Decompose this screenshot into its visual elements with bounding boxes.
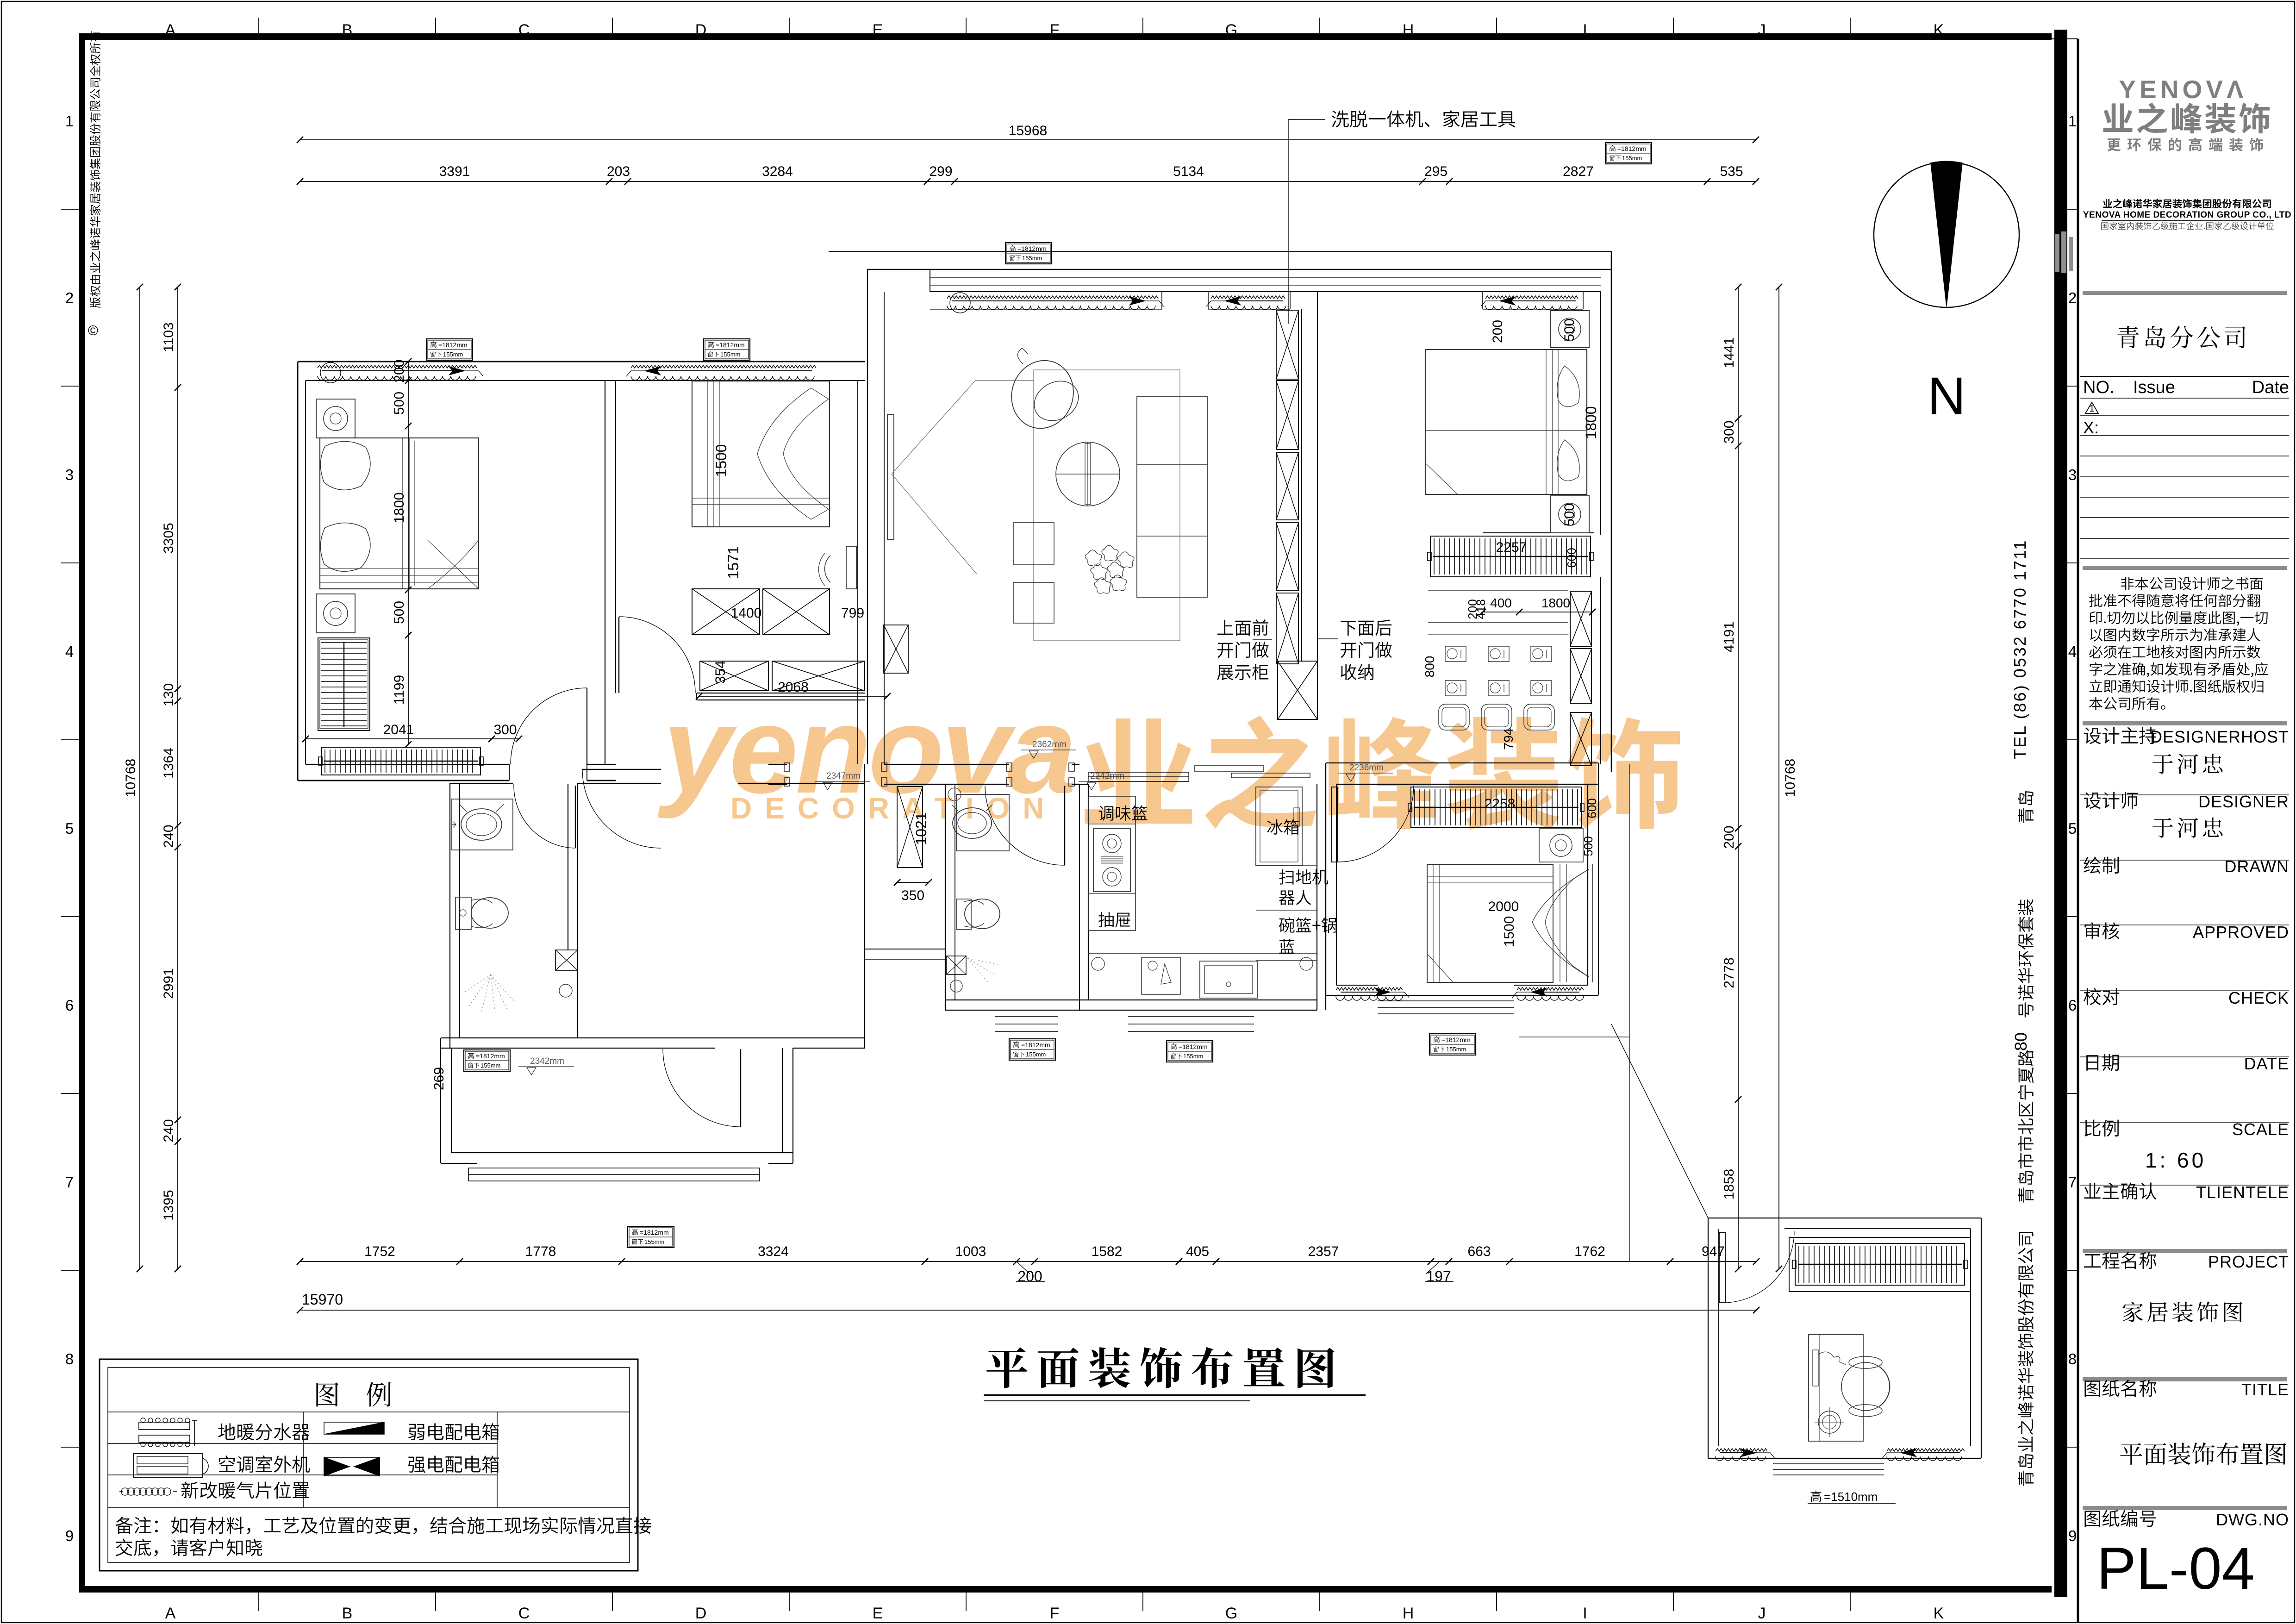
svg-text:2236mm: 2236mm bbox=[1349, 763, 1384, 773]
svg-text:2778: 2778 bbox=[1722, 957, 1737, 988]
svg-text:J: J bbox=[1758, 1605, 1766, 1622]
svg-text:80: 80 bbox=[2011, 1032, 2030, 1051]
svg-text:8: 8 bbox=[2068, 1350, 2077, 1368]
svg-text:3: 3 bbox=[2068, 466, 2077, 483]
svg-text:1364: 1364 bbox=[161, 748, 176, 779]
svg-text:2258: 2258 bbox=[1485, 796, 1516, 812]
svg-text:Issue: Issue bbox=[2133, 378, 2175, 397]
svg-text:4: 4 bbox=[65, 643, 74, 660]
svg-text:1199: 1199 bbox=[392, 675, 407, 705]
svg-text:2041: 2041 bbox=[383, 722, 414, 737]
svg-text:2257: 2257 bbox=[1496, 540, 1527, 555]
svg-text:2357: 2357 bbox=[1308, 1244, 1339, 1259]
svg-text:200: 200 bbox=[1722, 825, 1737, 849]
svg-text:2: 2 bbox=[2068, 289, 2077, 306]
svg-text:155mm: 155mm bbox=[443, 351, 463, 358]
svg-text:1571: 1571 bbox=[725, 546, 742, 579]
svg-text:APPROVED: APPROVED bbox=[2193, 923, 2289, 942]
svg-text:600: 600 bbox=[1565, 548, 1578, 568]
svg-text:240: 240 bbox=[161, 824, 176, 848]
svg-text:1800: 1800 bbox=[392, 493, 407, 524]
svg-text:500: 500 bbox=[1562, 503, 1577, 526]
svg-text:DRAWN: DRAWN bbox=[2224, 857, 2289, 876]
svg-text:6: 6 bbox=[65, 997, 74, 1014]
svg-text:TITLE: TITLE bbox=[2241, 1380, 2289, 1399]
svg-text:=1812mm: =1812mm bbox=[716, 341, 745, 349]
svg-text:B: B bbox=[342, 1605, 353, 1622]
svg-text:=1812mm: =1812mm bbox=[1021, 1041, 1050, 1049]
svg-text:PL-04: PL-04 bbox=[2096, 1536, 2255, 1602]
svg-text:G: G bbox=[1225, 1605, 1237, 1622]
svg-text:=1812mm: =1812mm bbox=[476, 1052, 505, 1060]
svg-text:350: 350 bbox=[901, 888, 924, 903]
svg-text:1003: 1003 bbox=[955, 1244, 986, 1259]
svg-text:7: 7 bbox=[65, 1174, 74, 1191]
svg-text:15968: 15968 bbox=[1009, 123, 1047, 138]
svg-text:2827: 2827 bbox=[1563, 164, 1594, 179]
svg-text:2068: 2068 bbox=[778, 680, 809, 695]
svg-text:200: 200 bbox=[1017, 1268, 1042, 1285]
svg-text:=1812mm: =1812mm bbox=[1617, 145, 1647, 152]
svg-text:155mm: 155mm bbox=[480, 1062, 500, 1069]
svg-text:5: 5 bbox=[2068, 820, 2077, 837]
svg-text:155mm: 155mm bbox=[1622, 155, 1642, 162]
svg-text:295: 295 bbox=[1424, 164, 1447, 179]
svg-text:800: 800 bbox=[1423, 656, 1437, 678]
svg-text:2242mm: 2242mm bbox=[1090, 771, 1124, 781]
svg-text:1800: 1800 bbox=[1583, 406, 1599, 439]
svg-text:15970: 15970 bbox=[302, 1291, 343, 1308]
svg-text:155mm: 155mm bbox=[1183, 1053, 1203, 1060]
svg-text:2000: 2000 bbox=[1488, 899, 1519, 914]
svg-text:9: 9 bbox=[2068, 1527, 2077, 1544]
svg-text:500: 500 bbox=[392, 392, 407, 415]
svg-text:Date: Date bbox=[2252, 378, 2289, 397]
svg-text:1: 1 bbox=[2068, 112, 2077, 130]
svg-text:200: 200 bbox=[1466, 599, 1479, 619]
svg-text:1: 1 bbox=[65, 112, 74, 130]
svg-text:=1812mm: =1812mm bbox=[438, 341, 468, 349]
svg-text:DECORATION: DECORATION bbox=[730, 792, 1057, 825]
svg-text:N: N bbox=[1927, 367, 1965, 426]
svg-text:155mm: 155mm bbox=[644, 1238, 664, 1245]
svg-text:A: A bbox=[165, 1605, 176, 1622]
svg-text:240: 240 bbox=[161, 1119, 176, 1142]
svg-text:1441: 1441 bbox=[1722, 337, 1737, 369]
svg-text:1582: 1582 bbox=[1092, 1244, 1123, 1259]
svg-text:535: 535 bbox=[1720, 164, 1743, 179]
svg-text:794: 794 bbox=[1501, 728, 1516, 750]
svg-text:5: 5 bbox=[65, 820, 74, 837]
svg-text:1858: 1858 bbox=[1722, 1169, 1737, 1200]
svg-text:©: © bbox=[88, 323, 98, 338]
svg-text:4: 4 bbox=[2068, 643, 2077, 660]
svg-text:1021: 1021 bbox=[913, 812, 930, 845]
svg-text:C: C bbox=[518, 1605, 530, 1622]
svg-text:1: 60: 1: 60 bbox=[2145, 1148, 2206, 1172]
svg-text:155mm: 155mm bbox=[720, 351, 740, 358]
svg-text:D: D bbox=[695, 1605, 707, 1622]
svg-text:400: 400 bbox=[1490, 596, 1512, 610]
svg-text:1752: 1752 bbox=[364, 1244, 395, 1259]
svg-text:DWG.NO: DWG.NO bbox=[2216, 1510, 2289, 1529]
svg-text:=1812mm: =1812mm bbox=[1017, 245, 1047, 252]
svg-text:1: 1 bbox=[2089, 404, 2094, 414]
svg-text:TEL (86) 0532 6770 1711: TEL (86) 0532 6770 1711 bbox=[2010, 539, 2029, 759]
svg-text:1762: 1762 bbox=[1574, 1244, 1605, 1259]
svg-text:1400: 1400 bbox=[731, 606, 762, 621]
svg-text:1778: 1778 bbox=[525, 1244, 556, 1259]
svg-text:500: 500 bbox=[392, 601, 407, 624]
svg-text:299: 299 bbox=[929, 164, 952, 179]
svg-text:YENOVΛ: YENOVΛ bbox=[2119, 75, 2247, 104]
svg-text:H: H bbox=[1403, 1605, 1414, 1622]
svg-text:PROJECT: PROJECT bbox=[2208, 1252, 2289, 1271]
svg-text:500: 500 bbox=[1581, 836, 1595, 856]
svg-text:TLIENTELE: TLIENTELE bbox=[2196, 1183, 2289, 1202]
svg-text:1103: 1103 bbox=[161, 322, 176, 352]
svg-text:4191: 4191 bbox=[1722, 622, 1737, 653]
svg-text:NO.: NO. bbox=[2083, 378, 2115, 397]
svg-text:1800: 1800 bbox=[1541, 596, 1570, 610]
svg-text:203: 203 bbox=[607, 164, 630, 179]
svg-text:1500: 1500 bbox=[713, 444, 730, 477]
svg-text:799: 799 bbox=[841, 606, 864, 621]
svg-text:I: I bbox=[1583, 1605, 1587, 1622]
svg-text:2362mm: 2362mm bbox=[1032, 740, 1067, 750]
svg-text:663: 663 bbox=[1467, 1244, 1491, 1259]
svg-text:155mm: 155mm bbox=[1026, 1051, 1046, 1058]
svg-text:354: 354 bbox=[713, 661, 728, 684]
svg-text:200: 200 bbox=[392, 359, 407, 382]
svg-text:2: 2 bbox=[65, 289, 74, 306]
svg-text:=1812mm: =1812mm bbox=[640, 1229, 669, 1236]
svg-text:X:: X: bbox=[2083, 418, 2099, 437]
svg-text:K: K bbox=[1934, 1605, 1944, 1622]
svg-text:=1812mm: =1812mm bbox=[1179, 1043, 1208, 1050]
svg-text:3284: 3284 bbox=[762, 164, 793, 179]
svg-text:300: 300 bbox=[1722, 420, 1737, 443]
svg-text:6: 6 bbox=[2068, 997, 2077, 1014]
svg-text:9: 9 bbox=[65, 1527, 74, 1544]
svg-text:3305: 3305 bbox=[161, 523, 176, 554]
svg-text:=1812mm: =1812mm bbox=[1441, 1036, 1471, 1043]
svg-text:3391: 3391 bbox=[439, 164, 470, 179]
svg-text:405: 405 bbox=[1186, 1244, 1209, 1259]
svg-text:8: 8 bbox=[65, 1350, 74, 1368]
svg-text:1500: 1500 bbox=[1502, 916, 1517, 947]
svg-text:E: E bbox=[873, 1605, 883, 1622]
svg-text:155mm: 155mm bbox=[1446, 1046, 1466, 1053]
svg-text:300: 300 bbox=[493, 722, 517, 737]
svg-text:=1510mm: =1510mm bbox=[1824, 1490, 1878, 1504]
svg-text:947: 947 bbox=[1702, 1244, 1725, 1259]
svg-text:3: 3 bbox=[65, 466, 74, 483]
svg-text:10768: 10768 bbox=[1783, 759, 1798, 797]
svg-text:1395: 1395 bbox=[161, 1190, 176, 1221]
svg-text:2342mm: 2342mm bbox=[530, 1056, 564, 1066]
svg-text:2991: 2991 bbox=[161, 968, 176, 999]
svg-text:130: 130 bbox=[161, 683, 176, 706]
svg-text:269: 269 bbox=[431, 1067, 447, 1090]
svg-text:DESIGNERHOST: DESIGNERHOST bbox=[2150, 727, 2289, 746]
svg-text:5134: 5134 bbox=[1173, 164, 1204, 179]
svg-text:155mm: 155mm bbox=[1022, 255, 1042, 262]
svg-text:YENOVA HOME DECORATION GROUP C: YENOVA HOME DECORATION GROUP CO., LTD bbox=[2083, 210, 2291, 220]
svg-text:CHECK: CHECK bbox=[2228, 988, 2289, 1007]
svg-text:600: 600 bbox=[1585, 798, 1599, 818]
svg-text:2347mm: 2347mm bbox=[826, 771, 861, 781]
svg-text:F: F bbox=[1050, 1605, 1060, 1622]
svg-text:10768: 10768 bbox=[123, 759, 138, 797]
svg-text:7: 7 bbox=[2068, 1174, 2077, 1191]
svg-text:3324: 3324 bbox=[758, 1244, 789, 1259]
svg-text:200: 200 bbox=[1490, 320, 1505, 343]
svg-text:500: 500 bbox=[1562, 319, 1577, 342]
